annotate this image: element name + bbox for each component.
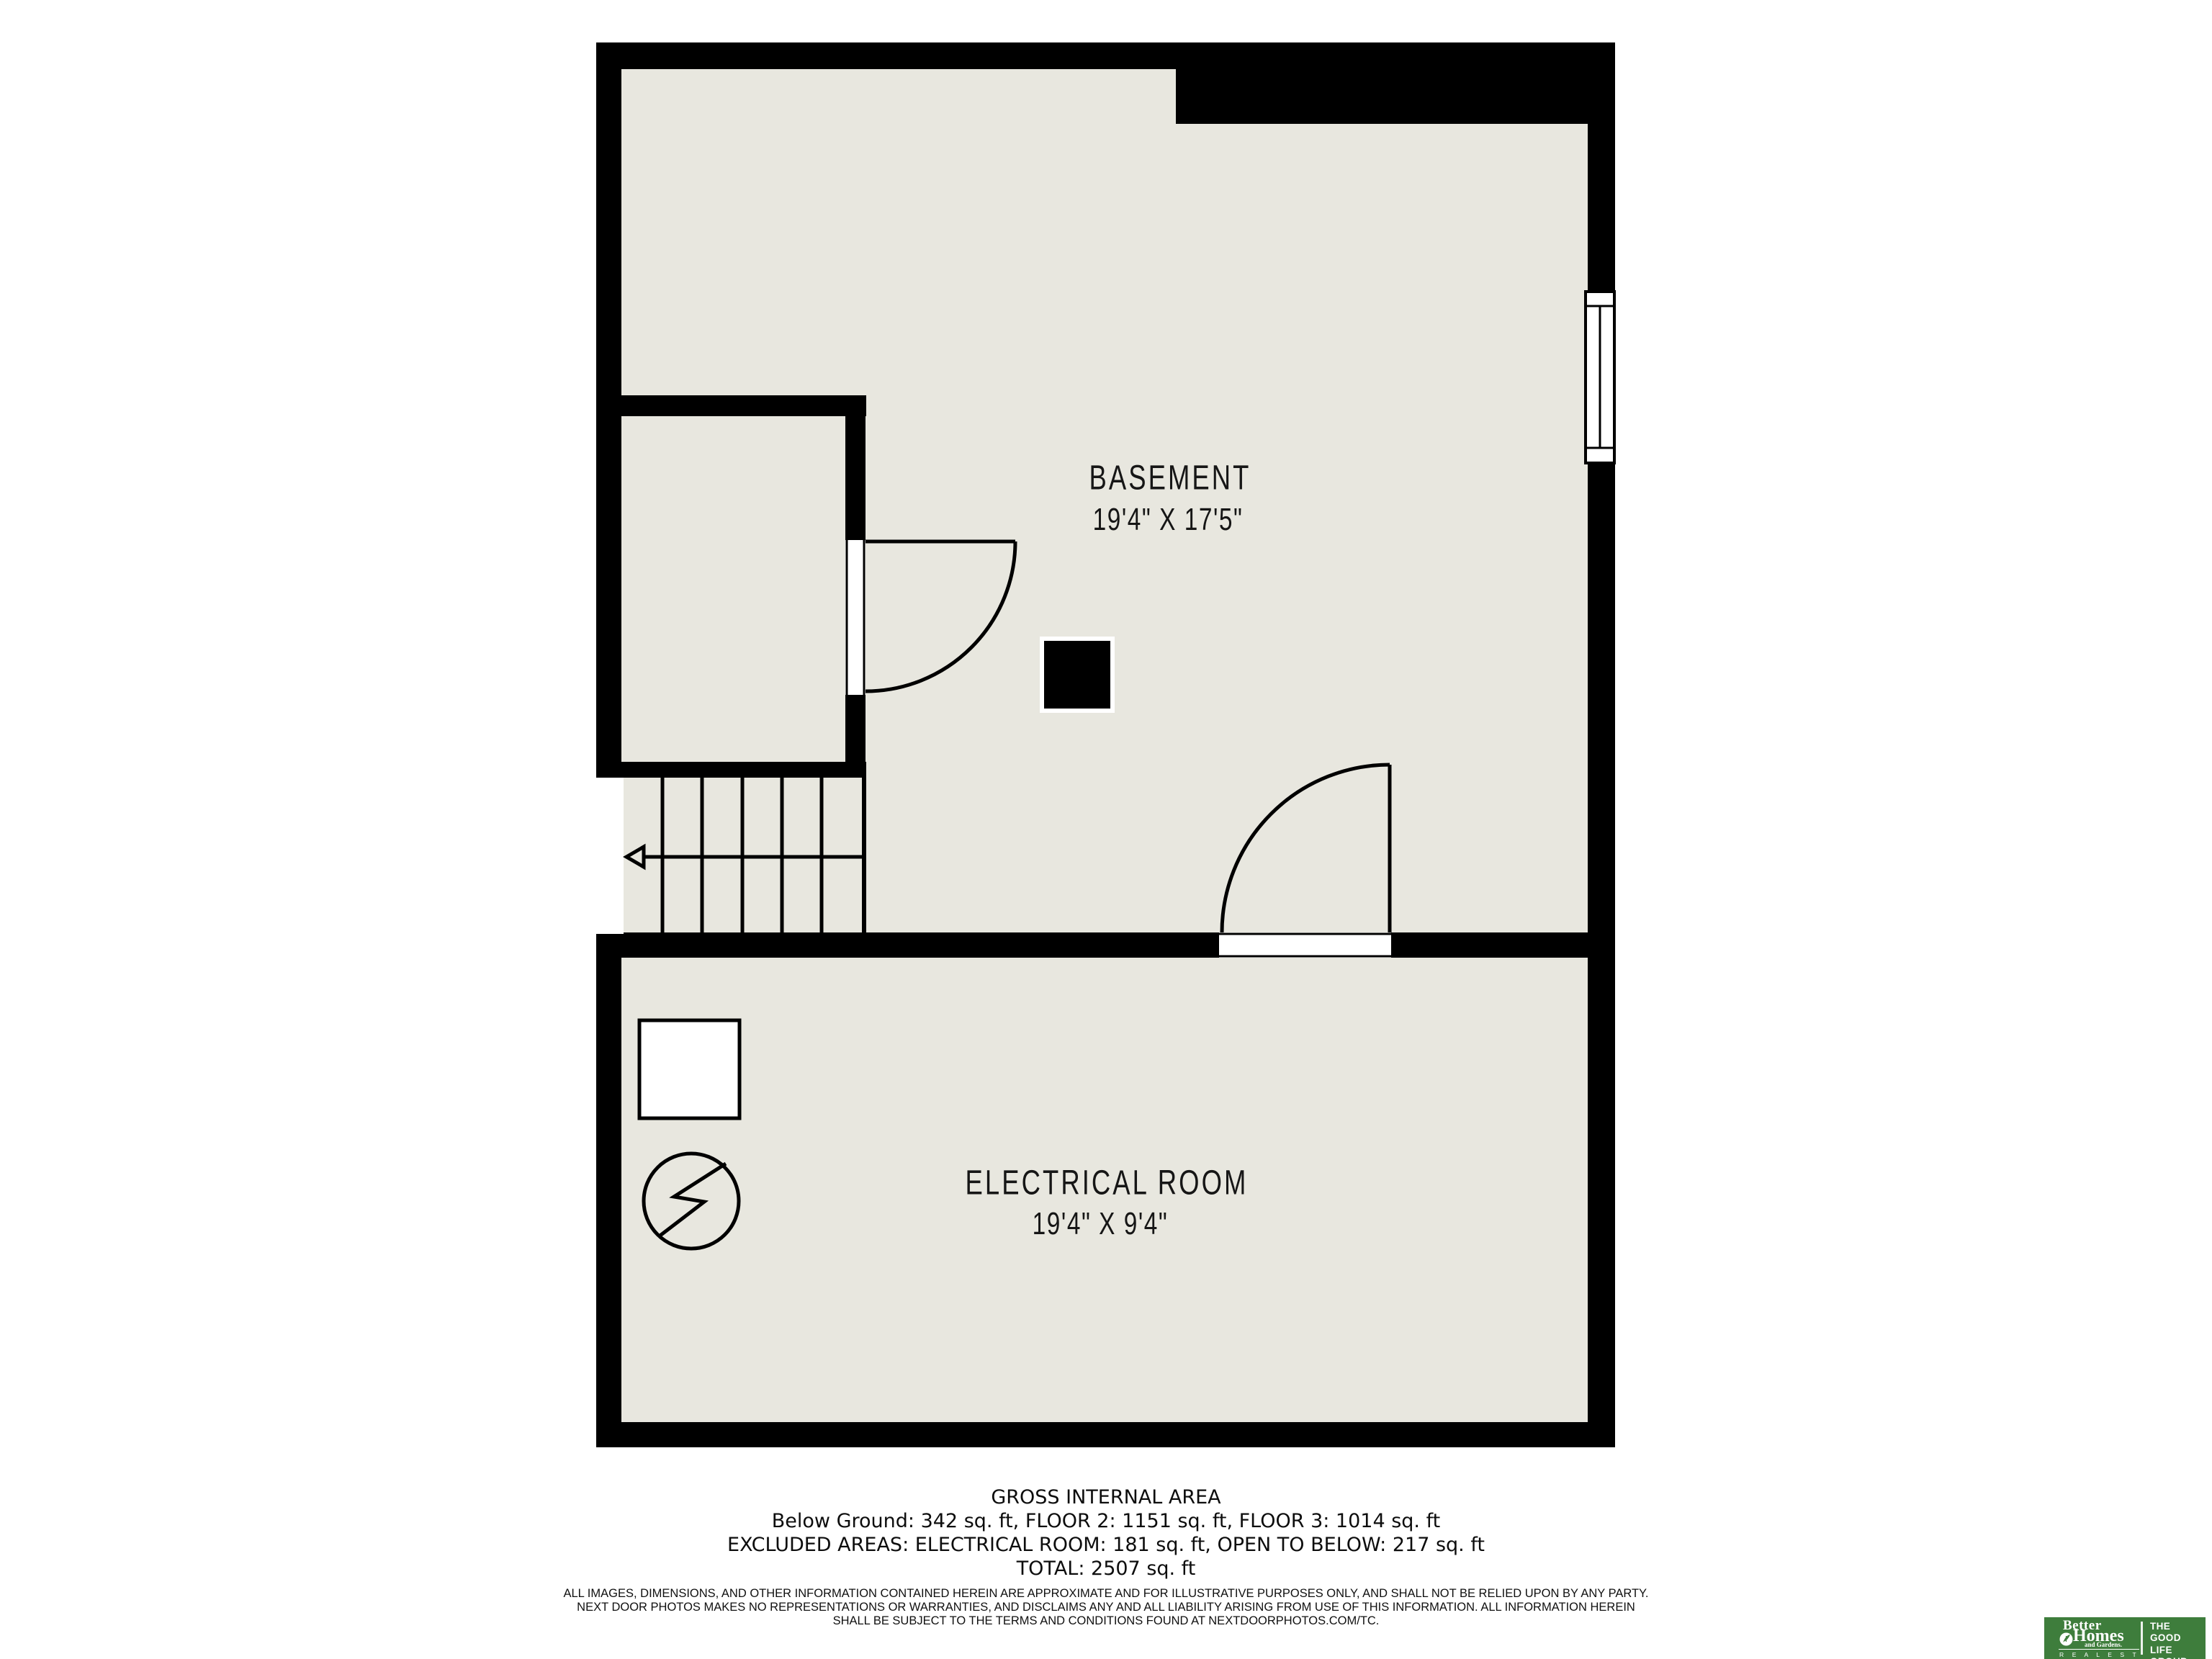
- brokerage-logo: Better Homes and Gardens. R E A L E S T …: [2044, 1617, 2206, 1659]
- interior-wall-basement-electrical: [596, 932, 1615, 958]
- area-summary: GROSS INTERNAL AREA Below Ground: 342 sq…: [727, 1485, 1485, 1581]
- disclaimer: ALL IMAGES, DIMENSIONS, AND OTHER INFORM…: [563, 1587, 1648, 1627]
- stairwell-wall-top: [621, 762, 866, 778]
- floorplan-page: BASEMENT 19'4" X 17'5" ELECTRICAL ROOM 1…: [0, 0, 2212, 1659]
- tagline-line: GROUP: [2150, 1656, 2206, 1659]
- stairs-edge-line: [862, 778, 866, 932]
- good-life-group-tagline: THE GOOD LIFE GROUP: [2150, 1621, 2206, 1659]
- logo-real-estate: R E A L E S T A T E: [2059, 1651, 2142, 1659]
- electrical-doorway: [1219, 932, 1391, 958]
- electrical-panel-icon: [639, 1020, 739, 1118]
- logo-divider-rule: [2059, 1649, 2139, 1650]
- logo-word-and-gardens: and Gardens.: [2085, 1641, 2122, 1648]
- closet-doorway: [845, 540, 866, 695]
- room-label-basement: BASEMENT: [1089, 459, 1251, 498]
- disclaimer-line: ALL IMAGES, DIMENSIONS, AND OTHER INFORM…: [563, 1587, 1648, 1601]
- disclaimer-line: NEXT DOOR PHOTOS MAKES NO REPRESENTATION…: [563, 1601, 1648, 1614]
- exterior-wall-top-right-block: [1176, 42, 1615, 124]
- exterior-wall-top: [596, 42, 1176, 69]
- room-label-electrical: ELECTRICAL ROOM: [966, 1164, 1249, 1203]
- exterior-wall-bottom: [596, 1422, 1615, 1447]
- area-summary-title: GROSS INTERNAL AREA: [727, 1485, 1485, 1509]
- better-homes-wordmark: Better Homes and Gardens. R E A L E S T …: [2044, 1617, 2142, 1659]
- tagline-line: GOOD LIFE: [2150, 1632, 2206, 1656]
- column-square: [1042, 639, 1112, 711]
- area-summary-floors: Below Ground: 342 sq. ft, FLOOR 2: 1151 …: [727, 1509, 1485, 1533]
- logo-vertical-divider: [2141, 1622, 2143, 1655]
- stair-landing-opening: [595, 778, 624, 934]
- closet-wall-right-upper: [845, 395, 866, 540]
- room-dims-basement: 19'4" X 17'5": [1093, 502, 1244, 538]
- exterior-wall-left: [596, 42, 621, 1447]
- disclaimer-line: SHALL BE SUBJECT TO THE TERMS AND CONDIT…: [563, 1614, 1648, 1628]
- room-dims-electrical: 19'4" X 9'4": [1033, 1206, 1169, 1242]
- leaf-icon: [2059, 1632, 2073, 1650]
- window: [1586, 292, 1614, 463]
- closet-wall-top: [621, 395, 866, 416]
- area-summary-excluded: EXCLUDED AREAS: ELECTRICAL ROOM: 181 sq.…: [727, 1533, 1485, 1557]
- area-summary-total: TOTAL: 2507 sq. ft: [727, 1557, 1485, 1581]
- floor-plan-drawing: [0, 0, 2212, 1659]
- tagline-line: THE: [2150, 1621, 2206, 1632]
